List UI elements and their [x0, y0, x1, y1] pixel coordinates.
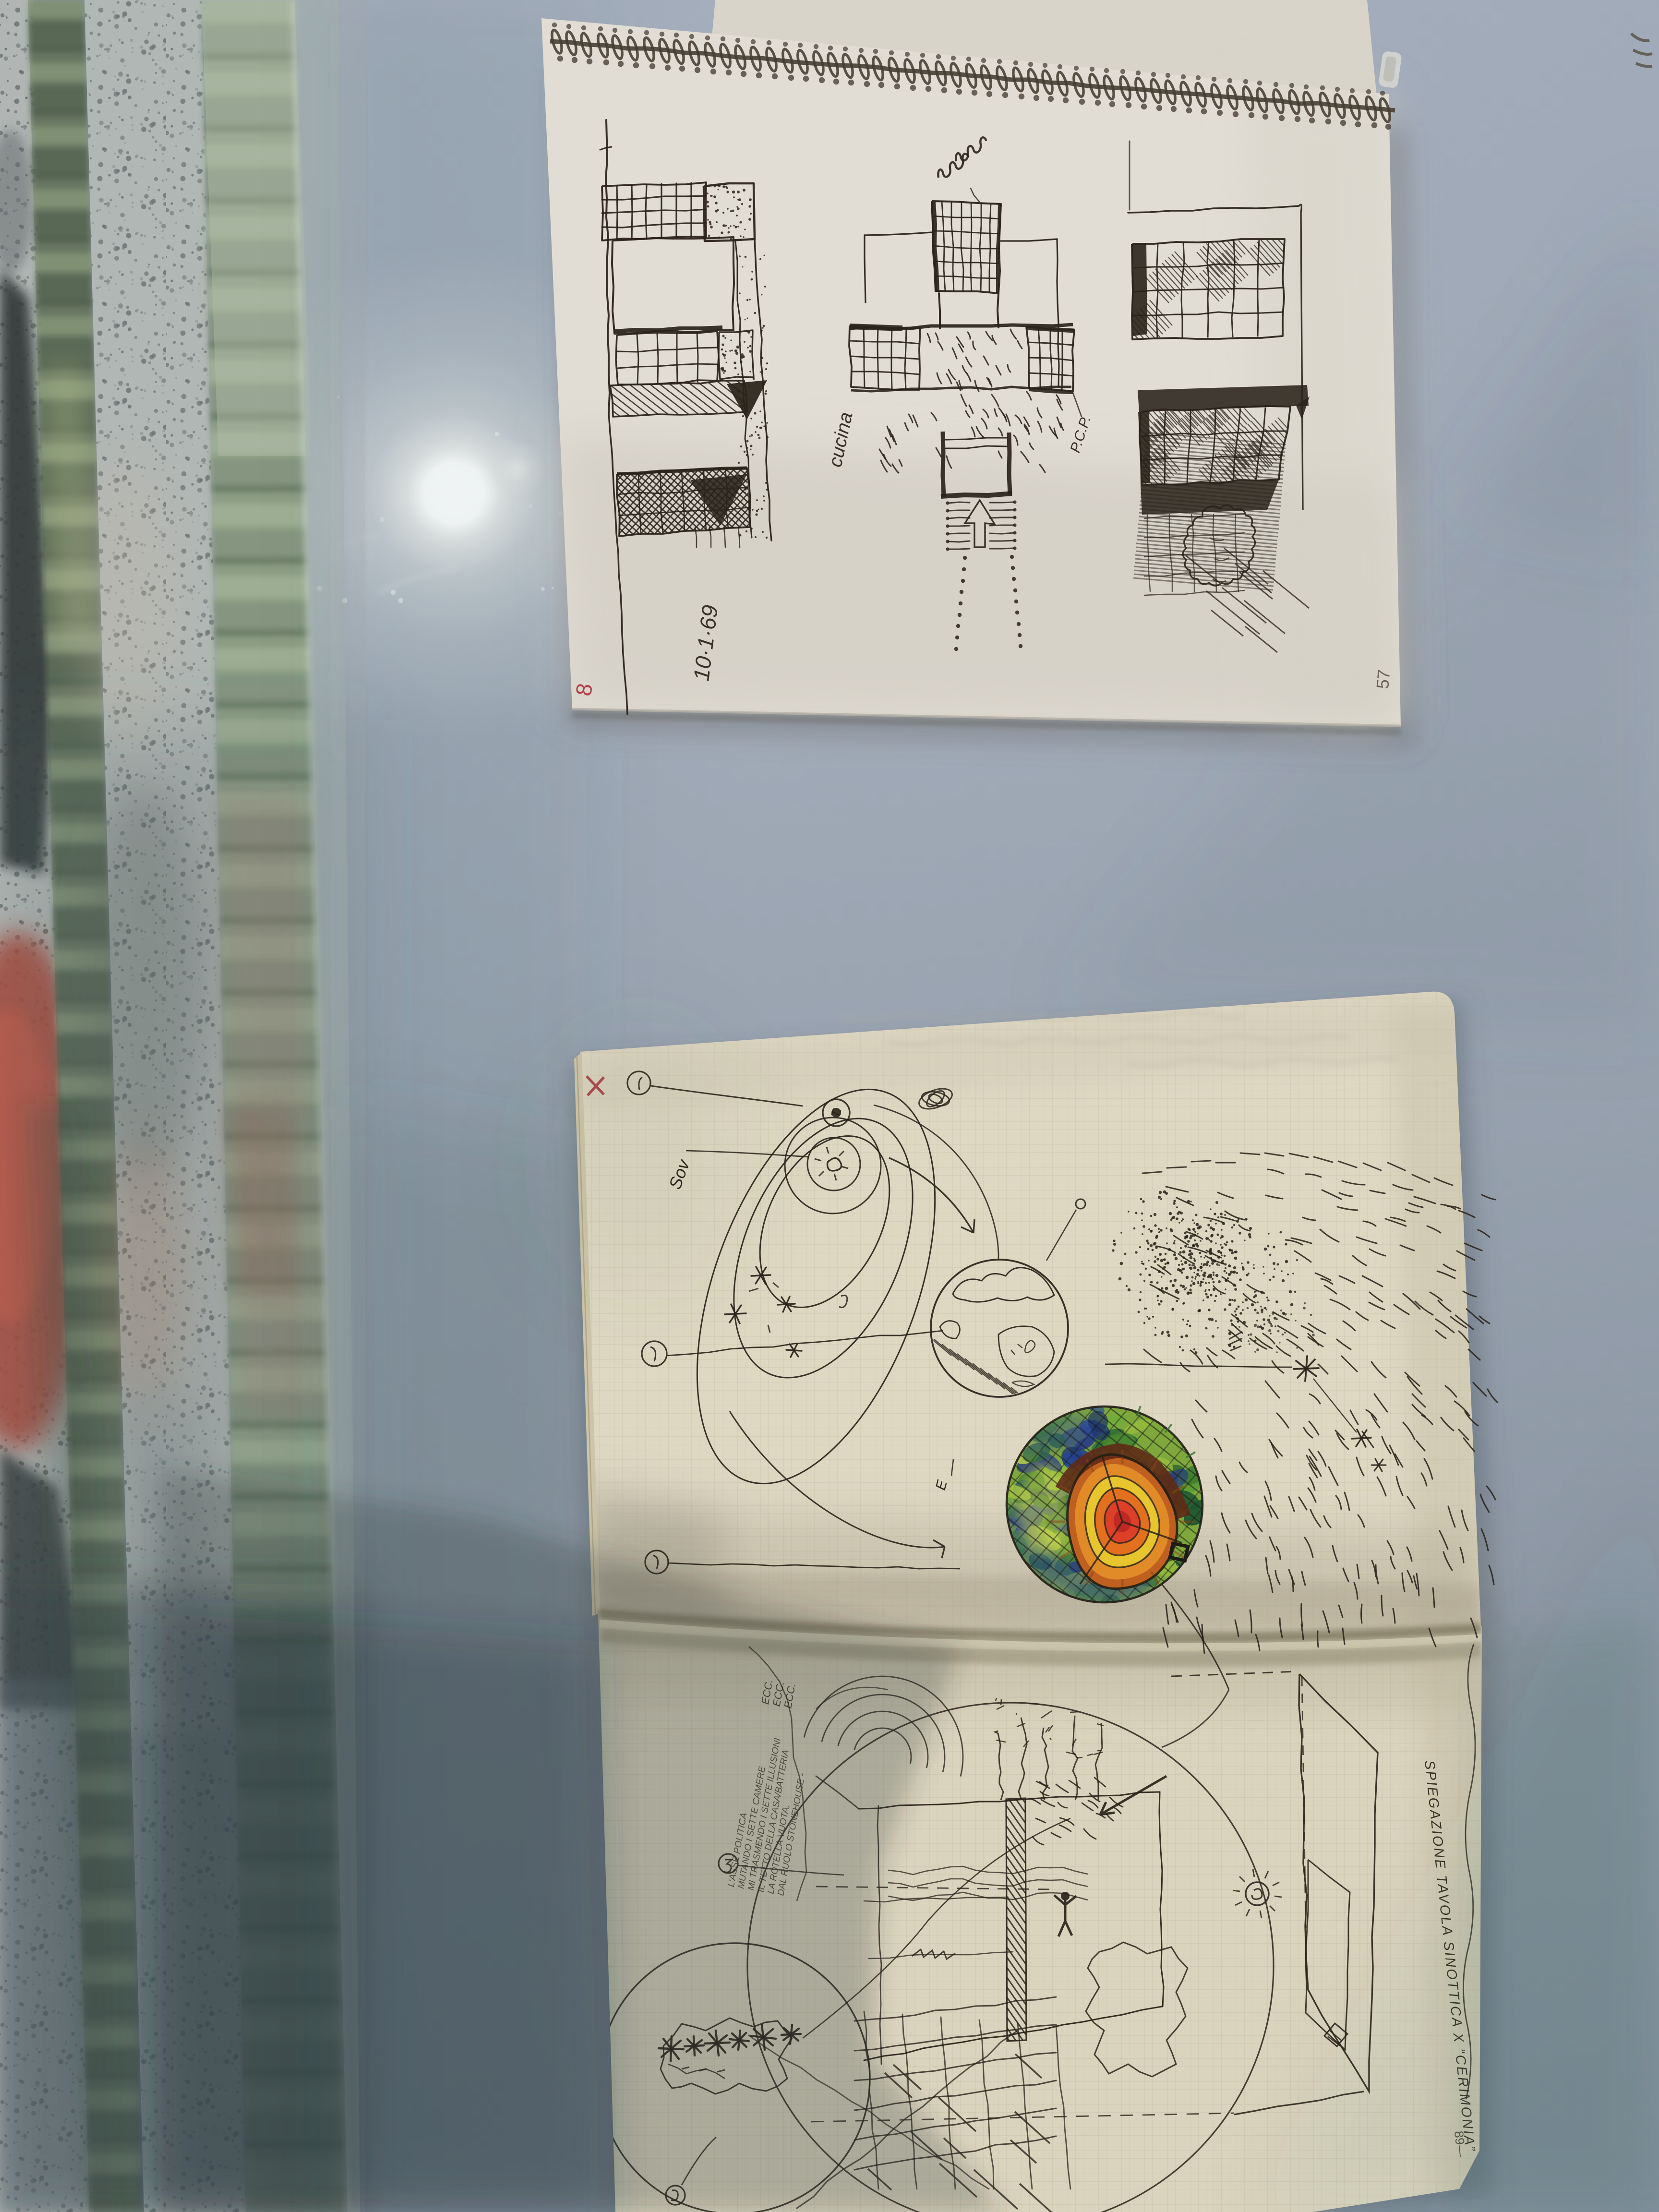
svg-text:57: 57: [1372, 669, 1394, 689]
